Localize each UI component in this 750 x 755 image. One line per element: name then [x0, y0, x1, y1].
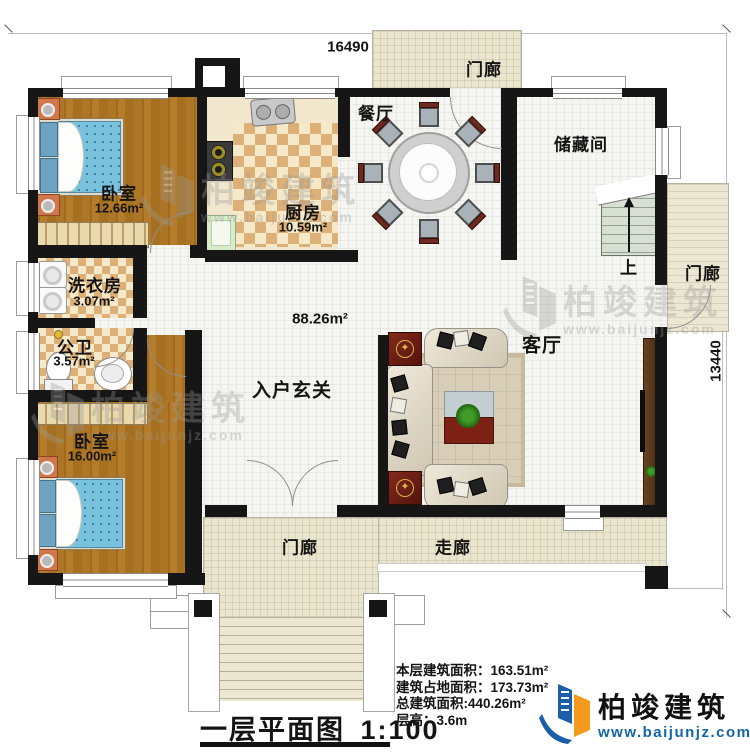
tv	[640, 390, 645, 452]
wall-segment	[655, 327, 667, 517]
stat-label: 总建筑面积:	[396, 696, 468, 711]
dining-chair	[363, 163, 383, 183]
bathroom-area: 3.57m²	[53, 354, 94, 369]
floorplan-page: 16490 13440	[0, 0, 750, 755]
stat-value: 163.51m²	[491, 663, 549, 678]
dimension-height-label: 13440	[708, 340, 725, 382]
window	[28, 263, 40, 312]
pillow	[390, 397, 407, 414]
wall-segment	[655, 175, 667, 285]
side-step	[393, 595, 425, 625]
watermark: 柏竣建筑 www.baijunjz.com	[140, 162, 361, 226]
nightstand	[36, 194, 60, 216]
stairs-direction-line	[628, 206, 630, 252]
stat-row: 本层建筑面积：163.51m²	[396, 663, 548, 680]
headboard	[39, 480, 56, 513]
window	[245, 88, 335, 99]
storage-label: 储藏间	[554, 131, 608, 156]
brand-logo: 柏竣建筑 www.baijunjz.com	[538, 682, 750, 744]
dining-chair	[475, 163, 495, 183]
stat-label: 建筑占地面积：	[396, 680, 491, 695]
brand-url: www.baijunjz.com	[598, 724, 750, 741]
headboard	[40, 158, 58, 193]
wall-segment	[28, 88, 38, 117]
stat-label: 本层建筑面积：	[396, 663, 491, 678]
window	[565, 505, 600, 519]
porch-right-label: 门廊	[685, 260, 721, 285]
dining-chair	[419, 219, 439, 239]
headboard	[39, 514, 56, 547]
wall-segment	[501, 88, 553, 97]
wall-segment	[28, 312, 38, 333]
watermark-name: 柏竣建筑	[91, 381, 251, 430]
watermark-logo-icon	[140, 162, 196, 226]
wall-segment	[337, 505, 565, 517]
dining-table-center	[419, 163, 439, 183]
stat-value: 440.26m²	[468, 696, 526, 711]
stat-value: 3.6m	[437, 713, 468, 728]
washing-machine	[38, 287, 67, 314]
pillar	[645, 566, 668, 589]
pier-cap	[194, 600, 212, 617]
dining-label: 餐厅	[358, 100, 394, 125]
plan-title-text: 一层平面图	[200, 715, 345, 745]
dimension-tick	[4, 24, 12, 32]
entry-steps	[218, 617, 363, 701]
kitchen-area: 10.59m²	[279, 220, 327, 235]
stat-row: 建筑占地面积：173.73m²	[396, 680, 548, 697]
wall-segment	[338, 97, 350, 157]
watermark-logo-icon	[502, 274, 558, 338]
laundry-area: 3.07m²	[73, 294, 114, 309]
pillow	[391, 419, 407, 435]
dimension-line-top	[8, 33, 726, 34]
wall-segment	[655, 88, 667, 128]
wall-segment	[168, 573, 205, 585]
stat-row: 总建筑面积:440.26m²	[396, 696, 548, 713]
foyer-area: 88.26m²	[292, 311, 348, 328]
dining-chair	[419, 107, 439, 127]
stat-label: 层高：	[396, 713, 437, 728]
wall-segment	[378, 335, 388, 505]
wall-segment	[133, 258, 147, 318]
headboard	[40, 122, 58, 157]
brand-logo-icon	[538, 682, 592, 744]
pillow	[437, 477, 455, 495]
foyer-label: 入户玄关	[252, 376, 332, 403]
living-label: 客厅	[522, 331, 562, 358]
wall-segment	[28, 573, 63, 585]
dimension-width-label: 16490	[327, 39, 369, 56]
kitchen-sink	[250, 96, 296, 127]
side-step	[150, 611, 190, 629]
porch-bottom-label: 门廊	[282, 534, 318, 559]
corner-cabinet: ✦	[388, 332, 422, 366]
wall-segment	[600, 505, 667, 517]
wall-segment	[38, 318, 95, 328]
wall-segment	[501, 97, 517, 260]
porch-bottom-floor	[203, 517, 379, 619]
wall-segment	[38, 245, 147, 258]
window	[63, 88, 168, 99]
plant	[456, 404, 480, 428]
window	[28, 117, 40, 190]
bedroom2-area: 16.00m²	[68, 449, 116, 464]
wall-segment	[205, 250, 358, 262]
terrace-outline	[667, 588, 723, 589]
window-sill	[55, 585, 177, 599]
pillow	[453, 481, 470, 498]
window-sill	[667, 126, 681, 179]
window	[655, 128, 669, 175]
watermark-name: 柏竣建筑	[201, 163, 361, 212]
title-underline	[200, 742, 390, 747]
dimension-tick	[722, 24, 730, 32]
stat-row: 层高：3.6m	[396, 713, 548, 730]
pier-cap	[369, 600, 387, 617]
bedroom1-area: 12.66m²	[95, 201, 143, 216]
window-sill	[563, 517, 604, 531]
watermark-url: www.baijunjz.com	[563, 321, 723, 337]
washing-machine	[38, 261, 67, 288]
window	[28, 460, 40, 555]
corridor-label: 走廊	[435, 534, 471, 559]
wall-segment	[335, 88, 450, 97]
stairs-arrow-icon	[624, 197, 634, 207]
porch-top-label: 门廊	[466, 56, 502, 81]
brand-name: 柏竣建筑	[598, 686, 750, 726]
terrace-edge	[377, 563, 647, 572]
wall-segment	[205, 505, 247, 517]
chimney-flue-inner	[203, 66, 225, 87]
window	[63, 573, 168, 587]
corner-cabinet: ✦	[388, 471, 422, 505]
stairs-label: 上	[620, 254, 638, 279]
watermark-url: www.baijunjz.com	[91, 427, 251, 443]
watermark: 柏竣建筑 www.baijunjz.com	[30, 380, 251, 444]
wall-segment	[28, 190, 38, 263]
window	[553, 88, 622, 99]
wall-segment	[185, 330, 202, 573]
stats-block: 本层建筑面积：163.51m² 建筑占地面积：173.73m² 总建筑面积:44…	[396, 663, 548, 729]
